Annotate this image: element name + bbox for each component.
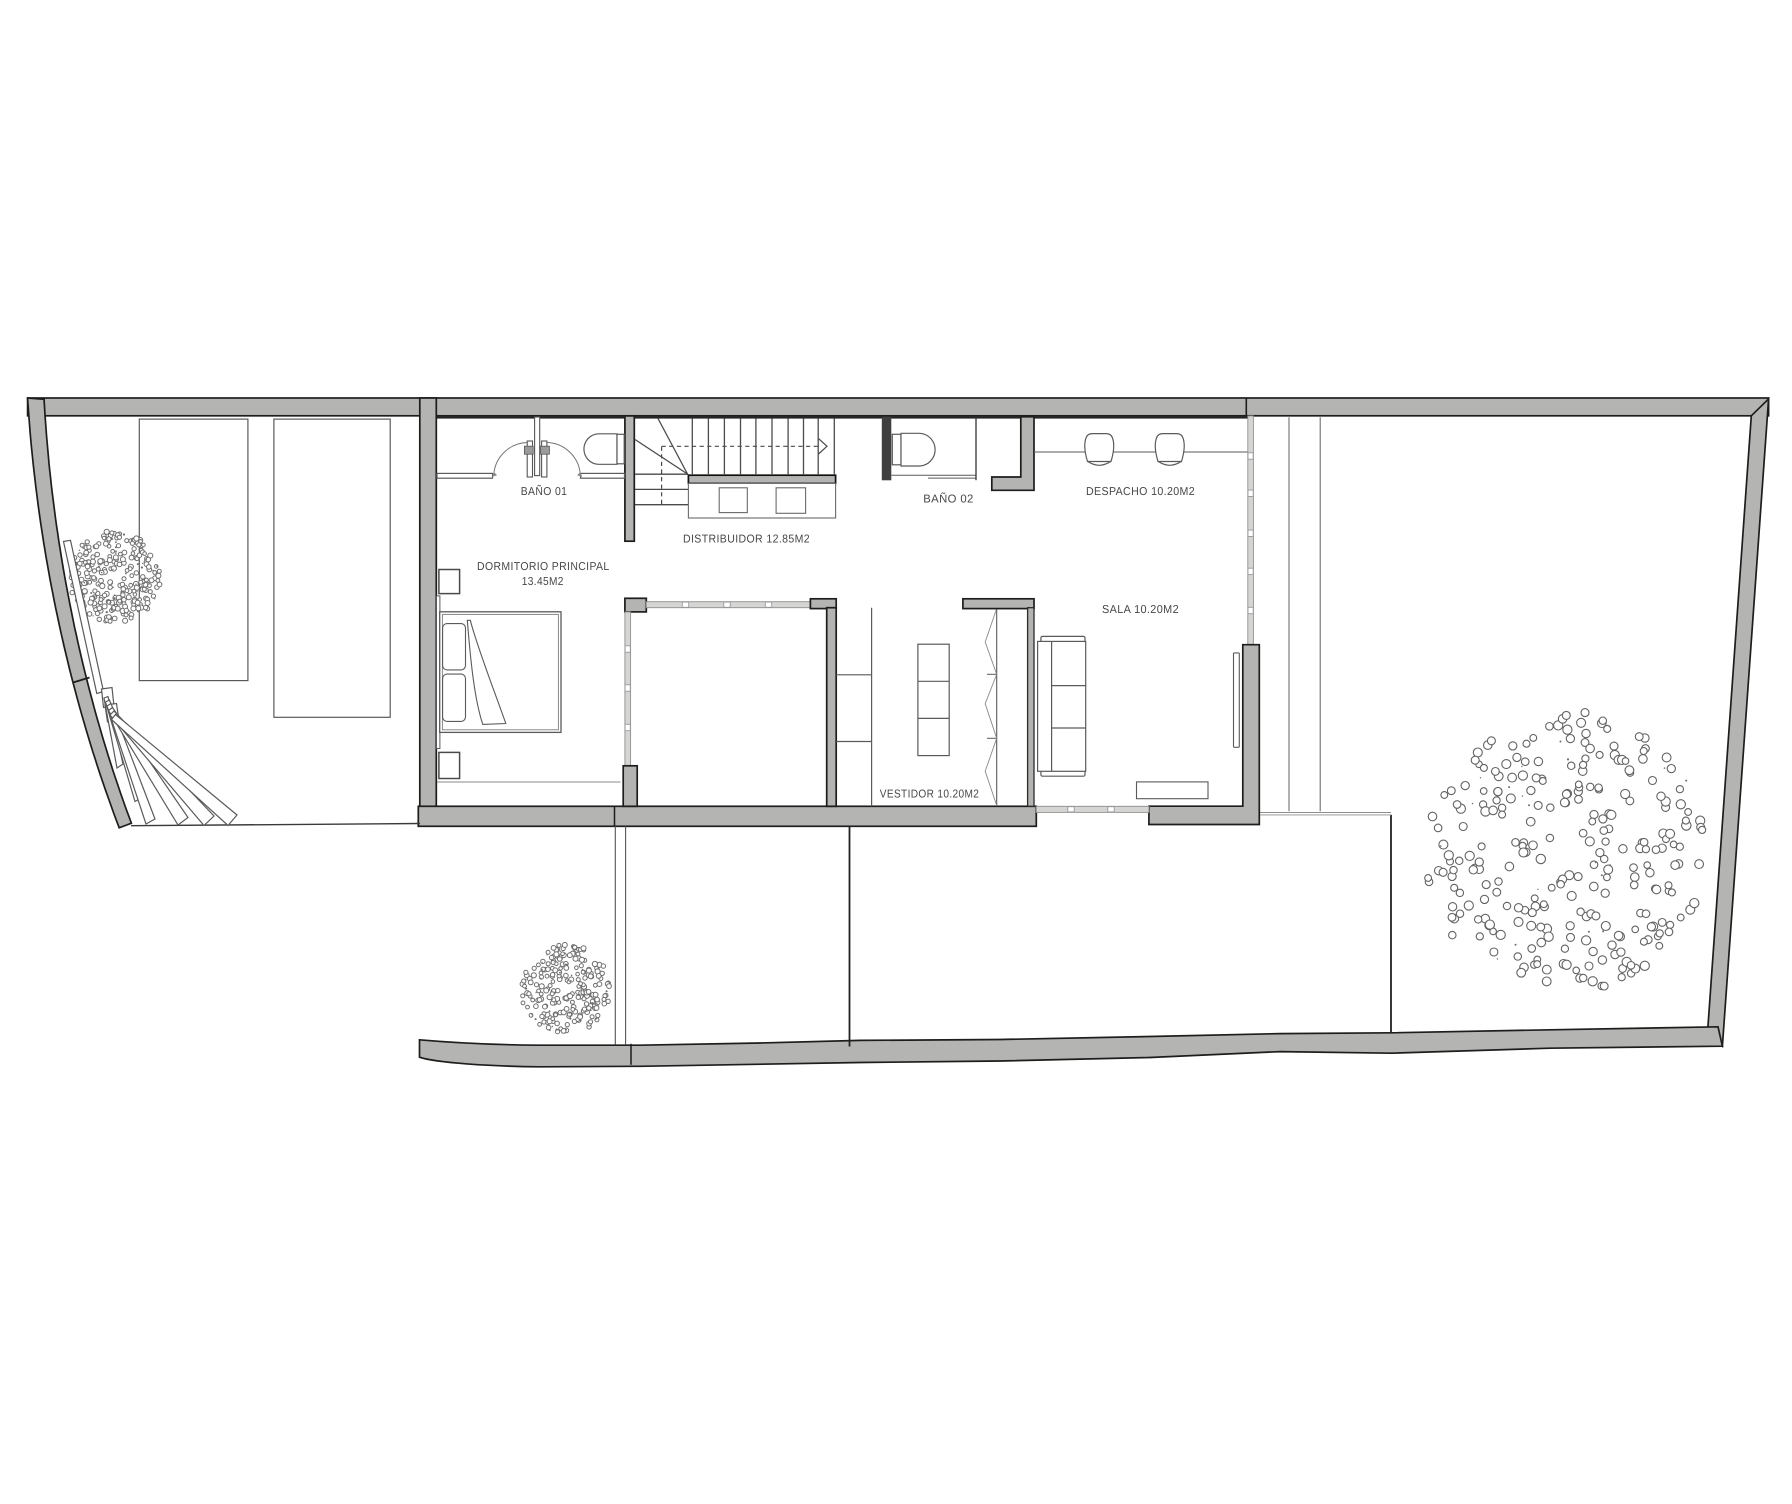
svg-text:DORMITORIO PRINCIPAL: DORMITORIO PRINCIPAL xyxy=(477,561,610,573)
svg-text:BAÑO 01: BAÑO 01 xyxy=(521,484,568,498)
svg-text:SALA 10.20M2: SALA 10.20M2 xyxy=(1102,604,1179,616)
svg-text:BAÑO 02: BAÑO 02 xyxy=(923,492,974,506)
svg-text:VESTIDOR 10.20M2: VESTIDOR 10.20M2 xyxy=(880,789,980,801)
svg-text:DESPACHO 10.20M2: DESPACHO 10.20M2 xyxy=(1086,486,1195,498)
svg-text:13.45M2: 13.45M2 xyxy=(522,576,564,588)
svg-text:DISTRIBUIDOR 12.85M2: DISTRIBUIDOR 12.85M2 xyxy=(683,534,810,546)
